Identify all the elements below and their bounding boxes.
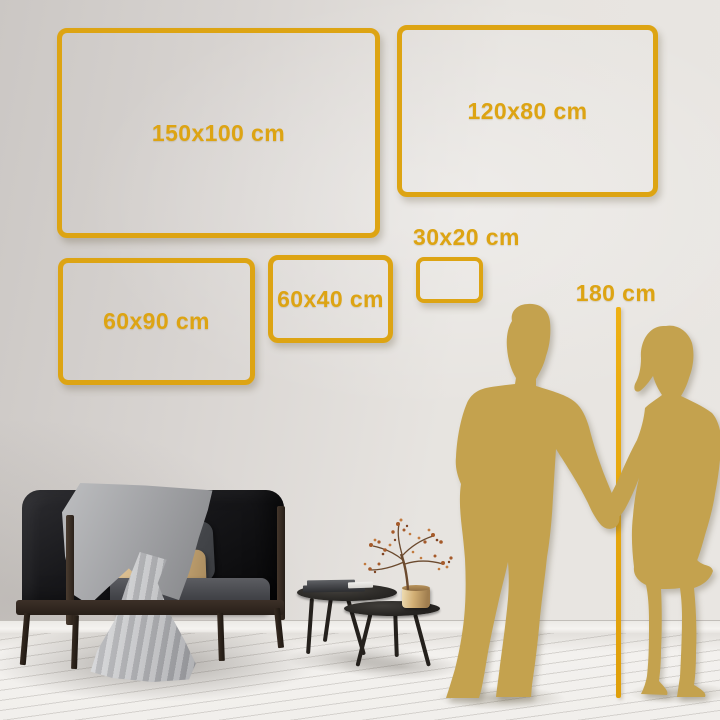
size-guide-scene: 150x100 cm 120x80 cm 60x90 cm 60x40 cm 3… [0, 0, 720, 720]
man-silhouette [446, 304, 620, 698]
couple-silhouettes [0, 0, 720, 720]
woman-silhouette [601, 326, 720, 697]
